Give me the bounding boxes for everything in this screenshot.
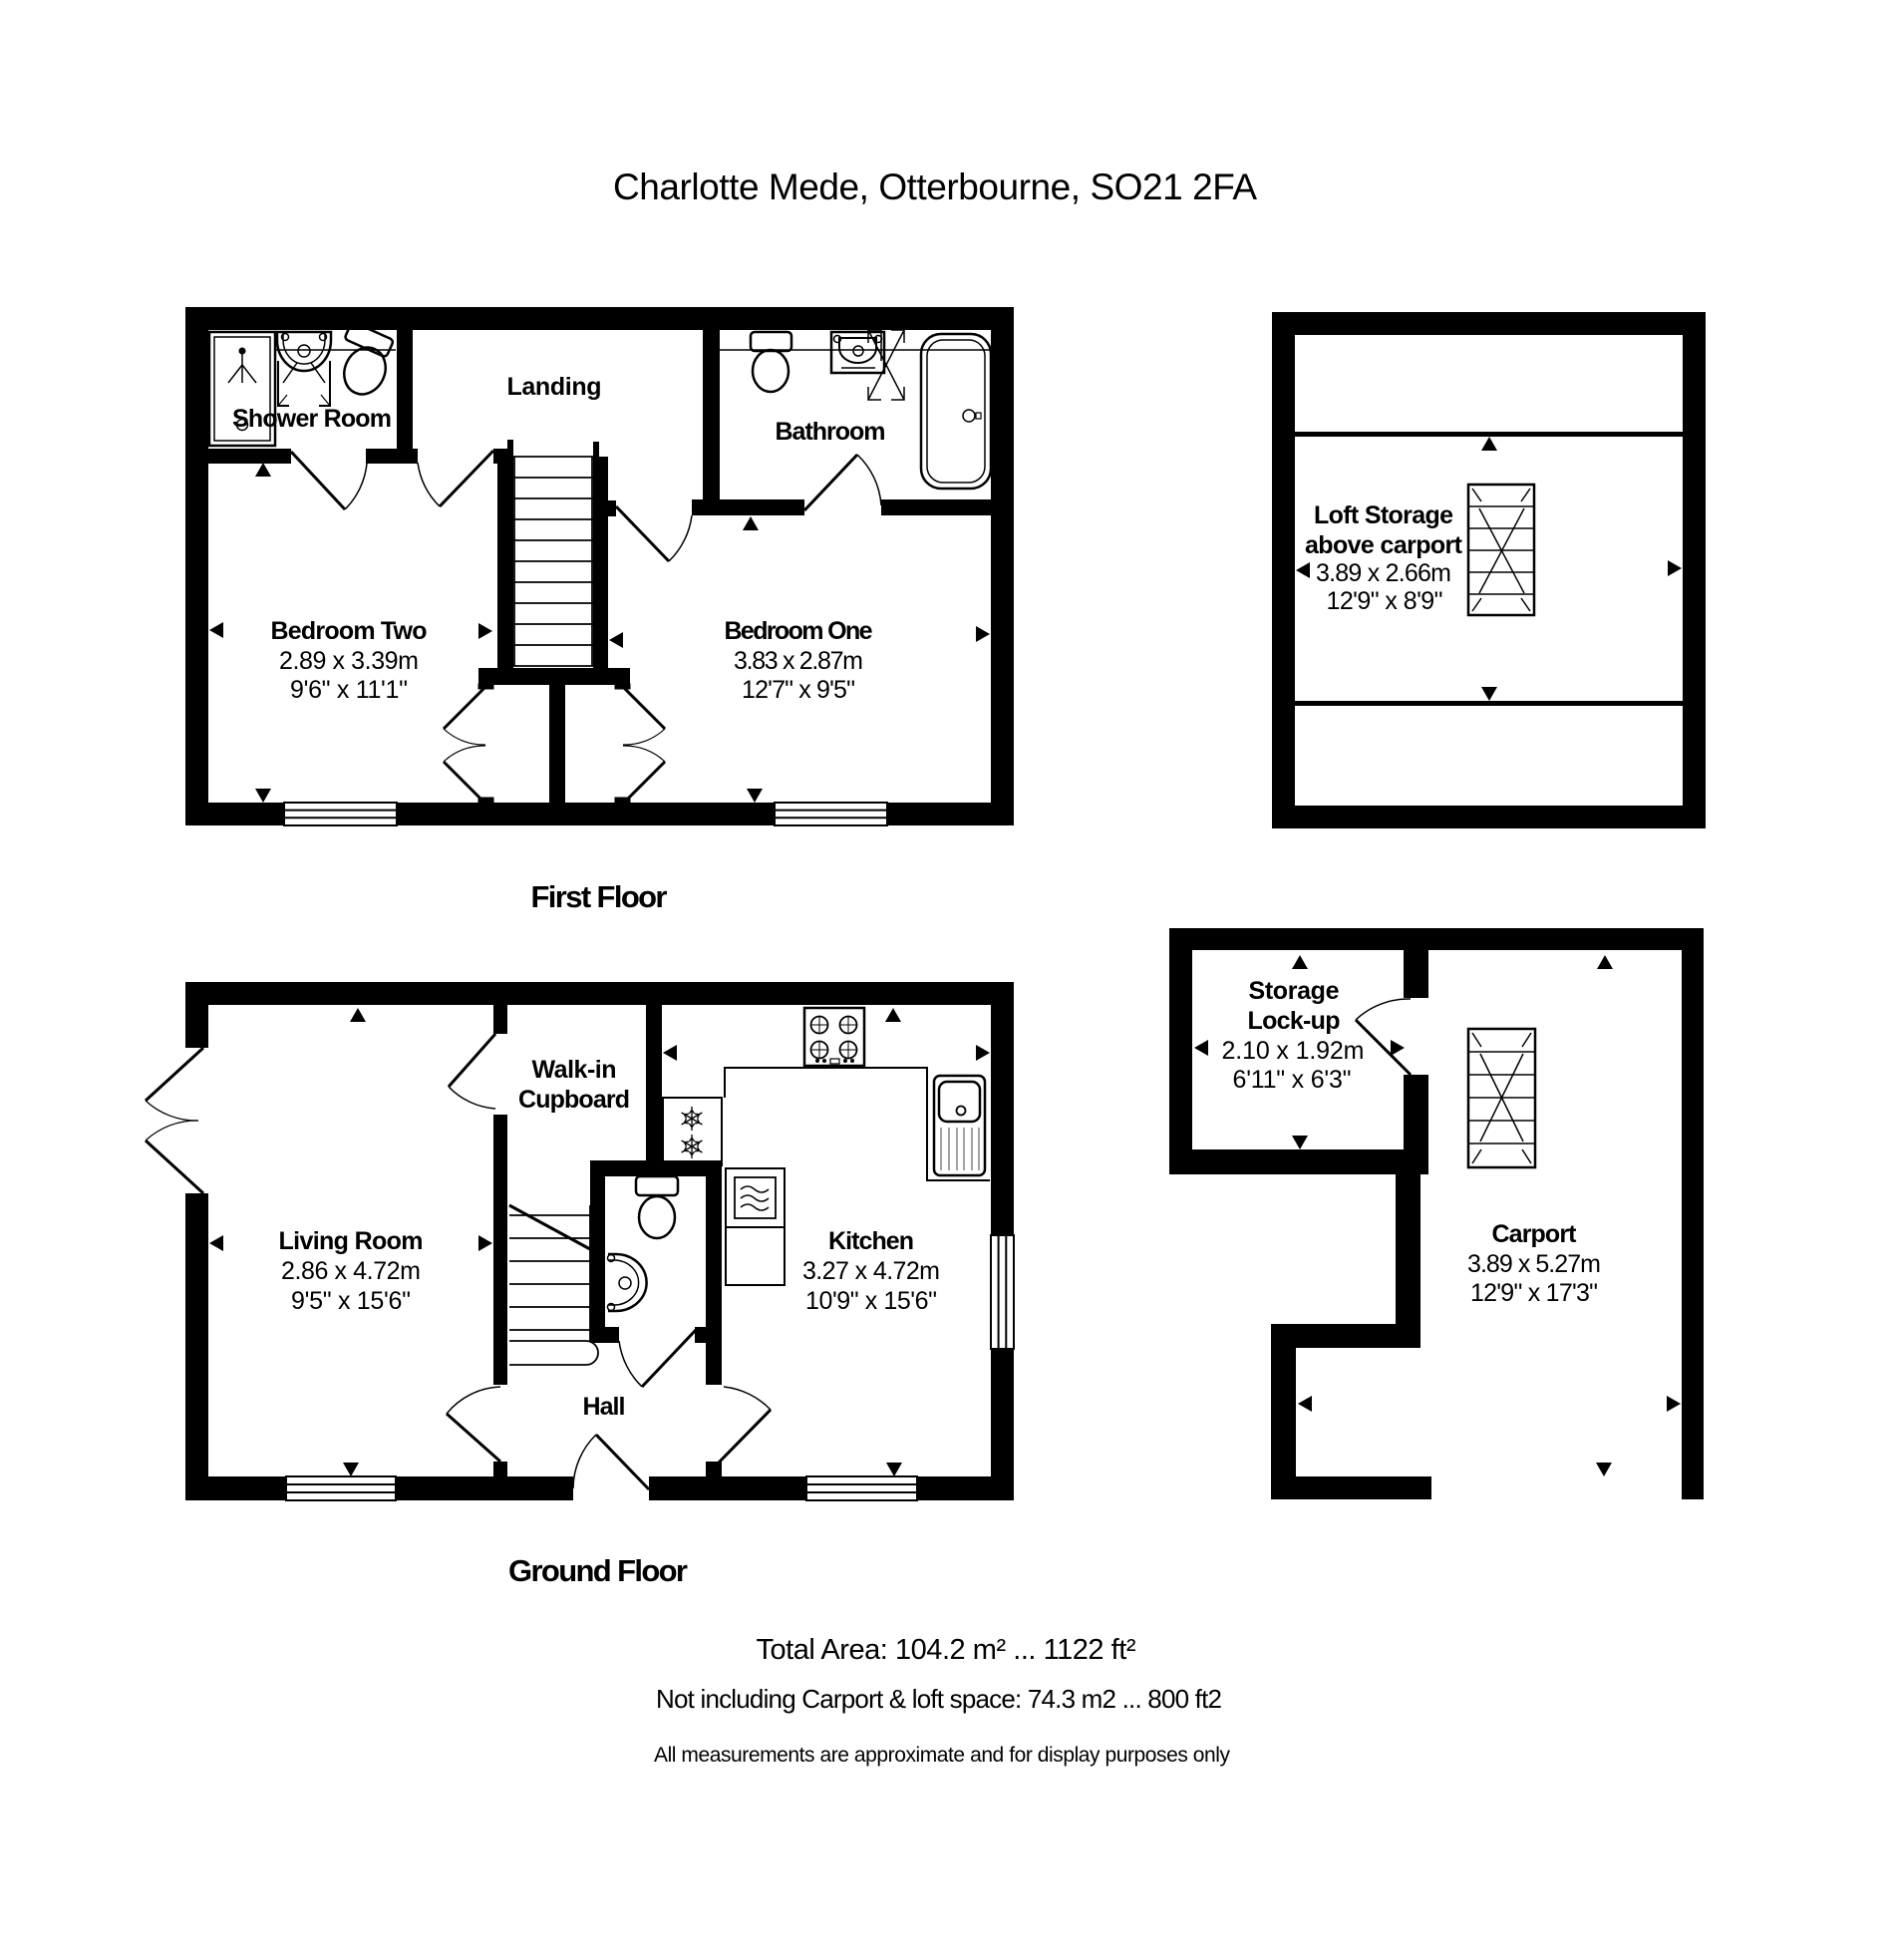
svg-text:Kitchen: Kitchen: [828, 1227, 914, 1255]
svg-text:12'7" x 9'5": 12'7" x 9'5": [742, 676, 855, 704]
svg-text:12'9" x 17'3": 12'9" x 17'3": [1470, 1279, 1598, 1307]
svg-text:All measurements are approxima: All measurements are approximate and for…: [654, 1744, 1231, 1767]
svg-text:3.89 x 2.66m: 3.89 x 2.66m: [1316, 559, 1451, 587]
svg-text:9'6" x 11'1": 9'6" x 11'1": [290, 676, 408, 704]
svg-text:3.27 x 4.72m: 3.27 x 4.72m: [802, 1257, 940, 1285]
svg-text:First Floor: First Floor: [531, 879, 668, 914]
svg-text:Total Area: 104.2 m² ... 1122: Total Area: 104.2 m² ... 1122 ft²: [757, 1634, 1136, 1666]
svg-text:Living Room: Living Room: [279, 1227, 424, 1255]
svg-text:Storage: Storage: [1249, 977, 1340, 1005]
svg-text:Bathroom: Bathroom: [776, 418, 886, 446]
svg-text:Cupboard: Cupboard: [518, 1086, 630, 1114]
svg-text:3.89 x 5.27m: 3.89 x 5.27m: [1467, 1250, 1601, 1278]
svg-text:Bedroom One: Bedroom One: [725, 617, 873, 645]
svg-text:12'9" x 8'9": 12'9" x 8'9": [1327, 587, 1443, 615]
svg-text:2.86 x 4.72m: 2.86 x 4.72m: [281, 1257, 421, 1285]
svg-text:2.10 x 1.92m: 2.10 x 1.92m: [1222, 1037, 1365, 1065]
svg-text:3.83 x 2.87m: 3.83 x 2.87m: [734, 647, 863, 675]
svg-text:Ground Floor: Ground Floor: [508, 1553, 688, 1588]
svg-text:Carport: Carport: [1492, 1220, 1578, 1248]
svg-text:2.89 x 3.39m: 2.89 x 3.39m: [279, 647, 419, 675]
svg-text:Not including Carport & loft s: Not including Carport & loft space: 74.3…: [656, 1684, 1222, 1714]
svg-text:Shower Room: Shower Room: [232, 405, 392, 433]
svg-text:Hall: Hall: [583, 1393, 626, 1421]
svg-text:Loft Storage: Loft Storage: [1314, 501, 1453, 529]
svg-text:Bedroom Two: Bedroom Two: [271, 617, 428, 645]
svg-text:Walk-in: Walk-in: [532, 1056, 617, 1084]
svg-text:10'9" x 15'6": 10'9" x 15'6": [805, 1287, 937, 1315]
svg-text:6'11" x 6'3": 6'11" x 6'3": [1233, 1066, 1352, 1094]
svg-text:above carport: above carport: [1305, 531, 1463, 559]
svg-text:Charlotte Mede, Otterbourne, S: Charlotte Mede, Otterbourne, SO21 2FA: [613, 166, 1257, 207]
svg-text:Landing: Landing: [507, 373, 602, 401]
svg-text:9'5" x 15'6": 9'5" x 15'6": [291, 1287, 411, 1315]
svg-text:Lock-up: Lock-up: [1248, 1007, 1341, 1035]
